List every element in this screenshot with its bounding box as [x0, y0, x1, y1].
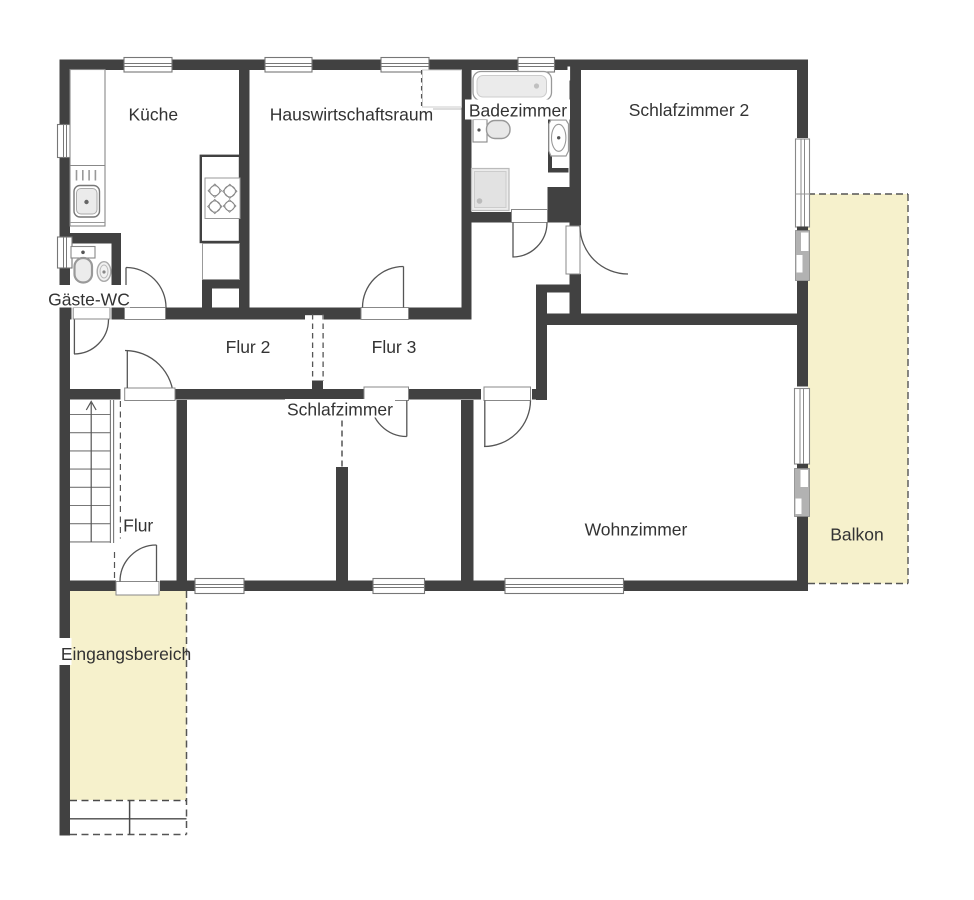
- svg-text:Schlafzimmer 2: Schlafzimmer 2: [629, 100, 750, 120]
- svg-text:Flur: Flur: [123, 516, 153, 536]
- svg-text:Hauswirtschaftsraum: Hauswirtschaftsraum: [270, 105, 433, 125]
- svg-text:Badezimmer: Badezimmer: [469, 101, 567, 121]
- svg-text:Balkon: Balkon: [830, 525, 884, 545]
- svg-text:Küche: Küche: [128, 105, 178, 125]
- svg-text:Flur 2: Flur 2: [226, 337, 271, 357]
- svg-text:Wohnzimmer: Wohnzimmer: [585, 520, 688, 540]
- svg-text:Flur 3: Flur 3: [372, 337, 417, 357]
- svg-text:Schlafzimmer: Schlafzimmer: [287, 400, 393, 420]
- svg-text:Gäste-WC: Gäste-WC: [48, 290, 130, 310]
- svg-text:Eingangsbereich: Eingangsbereich: [61, 644, 191, 664]
